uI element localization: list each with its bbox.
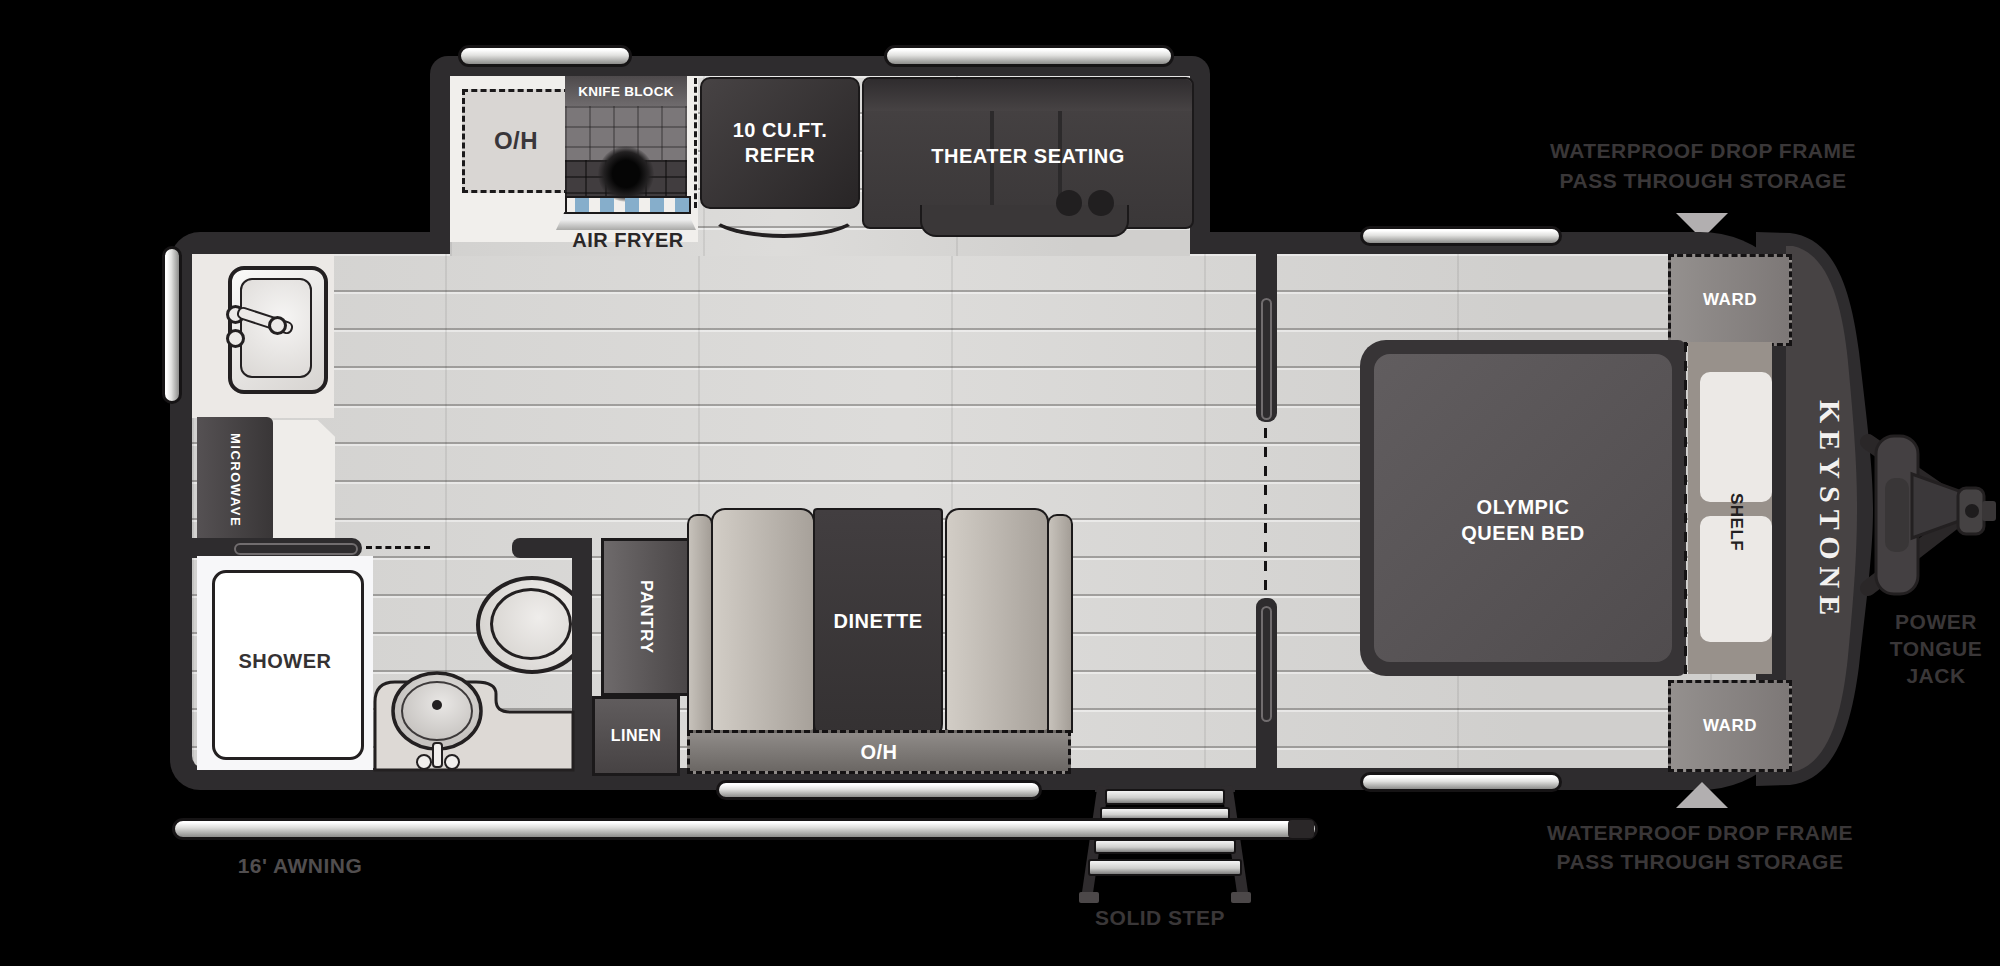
slideout-window-kitchen	[458, 45, 632, 67]
tongue-jack-graphic	[1855, 420, 2000, 610]
linen-cabinet: LINEN	[592, 696, 680, 776]
dinette-slide-handle	[716, 780, 1042, 800]
slideout-window-theater	[884, 45, 1174, 67]
cupholder-icon	[1088, 190, 1114, 216]
dinette-bench-right	[945, 508, 1049, 733]
partition-door-slot	[1261, 606, 1272, 722]
burner-icon	[598, 146, 654, 202]
rv-floorplan-canvas: WATERPROOF DROP FRAME PASS THROUGH STORA…	[0, 0, 2000, 966]
storage-note-top: WATERPROOF DROP FRAME PASS THROUGH STORA…	[1548, 136, 1858, 196]
dinette-arm	[1047, 514, 1073, 733]
theater-backrest	[864, 79, 1192, 111]
faucet-icon	[226, 329, 245, 348]
storage-note-bottom: WATERPROOF DROP FRAME PASS THROUGH STORA…	[1545, 818, 1855, 876]
microwave: MICROWAVE	[197, 417, 273, 543]
bedroom-window-bottom	[1360, 772, 1562, 792]
counter-edge-dashed	[694, 78, 697, 208]
bath-door-swing-dashed	[366, 546, 430, 549]
shower-label: SHOWER	[197, 648, 373, 674]
bed-label: OLYMPIC QUEEN BED	[1458, 490, 1588, 550]
wardrobe-top: WARD	[1668, 254, 1792, 346]
awning-label: 16' AWNING	[210, 854, 390, 878]
microwave-counter	[273, 420, 335, 540]
dinette-overhead-cabinet: O/H	[687, 730, 1071, 774]
cupholder-icon	[1056, 190, 1082, 216]
brand-wordmark: KEYSTONE	[1800, 378, 1860, 644]
wardrobe-bottom: WARD	[1668, 680, 1792, 772]
awning-bar	[172, 818, 1318, 840]
partition-door-slot	[1261, 298, 1272, 420]
knife-block: KNIFE BLOCK	[565, 76, 687, 106]
rear-window	[162, 246, 182, 404]
queen-bed: OLYMPIC QUEEN BED	[1360, 340, 1686, 676]
solid-step-label: SOLID STEP	[1060, 906, 1260, 930]
shelf-label: SHELF	[1700, 452, 1772, 592]
kitchen-overhead-cabinet: O/H	[462, 89, 570, 193]
airfryer-drawer	[565, 196, 691, 214]
pantry: PANTRY	[601, 538, 691, 696]
vanity-sink-graphic	[372, 655, 577, 773]
sink-drain-icon	[268, 316, 287, 335]
bedroom-window-top	[1360, 226, 1562, 246]
shower-pan: SHOWER	[197, 556, 373, 770]
toilet-seat	[490, 588, 572, 660]
entry-steps-graphic	[1075, 782, 1255, 910]
dinette-table: DINETTE	[813, 508, 943, 742]
theater-seating-label: THEATER SEATING	[864, 141, 1192, 171]
bath-door-slot	[234, 543, 358, 555]
dinette-arm	[687, 514, 713, 733]
dinette-bench-left	[711, 508, 815, 733]
storage-pointer-bottom-icon	[1676, 782, 1728, 808]
tongue-jack-label: POWER TONGUE JACK	[1872, 608, 2000, 689]
bed-edge-dashed	[1684, 342, 1687, 674]
partition-dashed-line	[1264, 428, 1267, 598]
refrigerator-door-arc	[706, 186, 862, 238]
awning-end-cap	[1288, 820, 1314, 838]
air-fryer-label: AIR FRYER	[556, 228, 700, 252]
